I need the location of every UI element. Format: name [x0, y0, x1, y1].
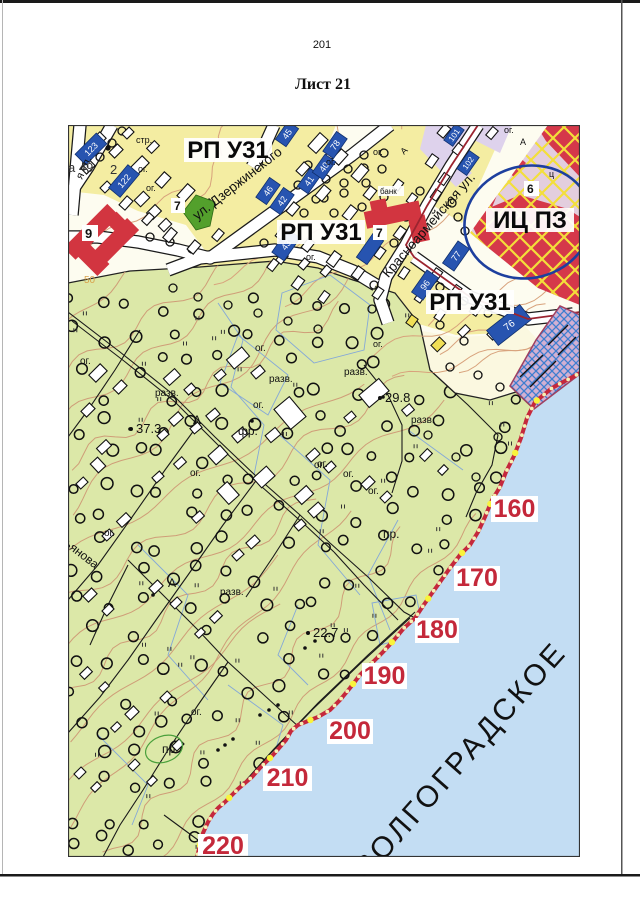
svg-text:ИЦ ПЗ: ИЦ ПЗ: [493, 207, 567, 234]
svg-text:А: А: [193, 413, 201, 427]
svg-text:ог.: ог.: [255, 343, 266, 354]
svg-text:ог.: ог.: [326, 157, 336, 167]
svg-text:6: 6: [527, 182, 534, 196]
svg-text:ог.: ог.: [138, 164, 148, 174]
svg-text:37.3: 37.3: [136, 421, 161, 436]
svg-text:210: 210: [267, 764, 309, 792]
svg-text:ог.: ог.: [368, 486, 379, 497]
svg-text:ог.: ог.: [104, 528, 115, 539]
svg-text:ог.: ог.: [373, 339, 383, 349]
svg-text:160: 160: [494, 495, 536, 523]
svg-text:ог.: ог.: [306, 252, 316, 262]
svg-text:ог.: ог.: [146, 183, 156, 193]
svg-text:ог.: ог.: [504, 125, 514, 135]
svg-text:50: 50: [84, 275, 96, 286]
svg-text:200: 200: [329, 717, 371, 745]
svg-text:А: А: [168, 576, 176, 590]
svg-text:разв.: разв.: [269, 374, 293, 385]
svg-text:7: 7: [376, 226, 383, 240]
svg-text:9: 9: [85, 226, 92, 241]
svg-text:190: 190: [364, 662, 406, 690]
svg-text:разв.: разв.: [220, 587, 244, 598]
svg-text:А: А: [520, 137, 526, 147]
svg-text:220: 220: [202, 832, 244, 860]
svg-text:ог.: ог.: [343, 469, 354, 480]
svg-text:разв.: разв.: [344, 367, 368, 378]
svg-text:170: 170: [456, 564, 498, 592]
svg-text:РП У31: РП У31: [429, 289, 511, 316]
svg-text:банк: банк: [380, 187, 397, 196]
svg-text:ог.: ог.: [373, 147, 383, 157]
svg-text:ог.: ог.: [190, 468, 201, 479]
svg-text:а 49: а 49: [68, 160, 93, 175]
svg-text:РП У31: РП У31: [280, 219, 362, 246]
svg-text:ц: ц: [549, 169, 554, 179]
svg-text:22.7: 22.7: [313, 625, 338, 640]
svg-text:стр.: стр.: [136, 135, 152, 145]
svg-text:пр.: пр.: [162, 742, 179, 756]
svg-text:Лист 21: Лист 21: [295, 76, 351, 93]
svg-text:201: 201: [313, 39, 331, 51]
svg-text:пр.: пр.: [383, 527, 400, 541]
svg-text:ог.: ог.: [253, 400, 264, 411]
svg-text:разв.: разв.: [411, 415, 435, 426]
svg-text:фр.: фр.: [238, 424, 258, 438]
svg-text:29.8: 29.8: [385, 390, 410, 405]
svg-text:ог.: ог.: [80, 356, 91, 367]
svg-text:180: 180: [416, 616, 458, 644]
svg-text:ог.: ог.: [317, 459, 328, 470]
svg-text:7: 7: [174, 199, 181, 213]
svg-text:разв.: разв.: [155, 388, 179, 399]
svg-text:ог.: ог.: [191, 707, 202, 718]
svg-text:2: 2: [110, 162, 117, 177]
